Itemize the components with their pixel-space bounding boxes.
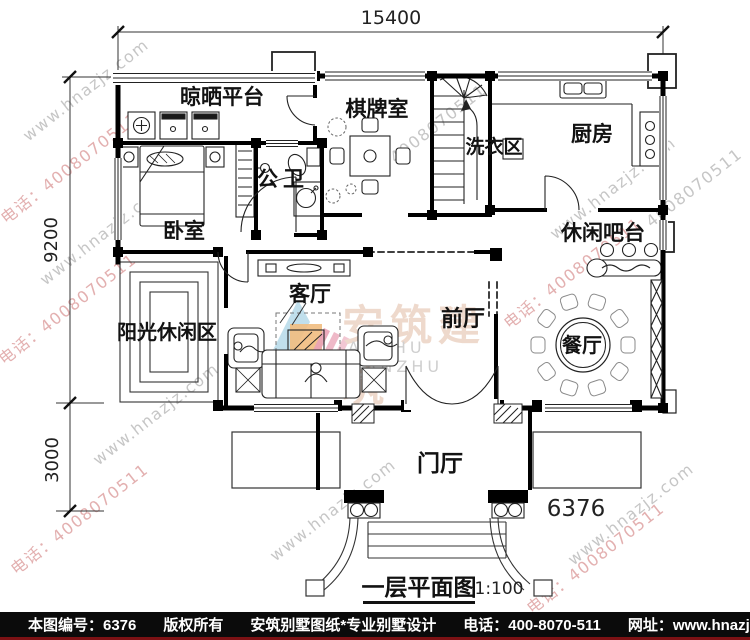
- tv-console: [258, 260, 350, 276]
- entry-width-number: 6376: [547, 496, 606, 522]
- bar-counter: [587, 244, 661, 278]
- footer-bar: 本图编号：6376 版权所有 安筑别墅图纸*专业别墅设计 电话：400-8070…: [0, 612, 750, 640]
- dim-left-lower: 3000: [42, 437, 63, 483]
- floor-plan-drawing: 15400 9200 3000: [0, 0, 750, 612]
- room-label-entry-hall: 门厅: [417, 450, 463, 476]
- room-label-bedroom: 卧室: [163, 219, 205, 243]
- room-label-kitchen: 厨房: [571, 122, 613, 146]
- footer-copyright: 版权所有: [163, 614, 223, 635]
- room-label-bar: 休闲吧台: [560, 221, 645, 245]
- footer-sheet-no: 本图编号：6376: [28, 614, 136, 635]
- room-label-living-room: 客厅: [289, 282, 331, 306]
- lattice-window: [651, 280, 662, 398]
- footer-phone: 电话：400-8070-511: [463, 614, 601, 635]
- room-label-front-hall: 前厅: [441, 306, 485, 331]
- room-label-drying-platform: 晾晒平台: [180, 85, 264, 109]
- plan-title-underline: [363, 601, 475, 604]
- footer-brand-line: 安筑别墅图纸*专业别墅设计: [250, 614, 436, 635]
- room-label-chess-room: 棋牌室: [346, 97, 409, 121]
- room-label-laundry: 洗衣区: [465, 135, 522, 158]
- drawing-sheet: 安筑建筑 ANZHU JIANZHU www.hnazjz.com电话：4008…: [0, 0, 750, 640]
- footer-site: 网址：www.hnazjz.com: [628, 614, 750, 635]
- living-label-leader: [280, 303, 306, 325]
- plan-scale: 1:100: [475, 579, 524, 599]
- room-label-sun-lounge: 阳光休闲区: [117, 320, 217, 344]
- washing-machines: [128, 112, 219, 139]
- sofa-set: [228, 326, 398, 398]
- bed: [120, 146, 224, 226]
- wardrobe: [236, 143, 254, 217]
- room-label-bathroom: 公卫: [257, 168, 309, 191]
- mahjong-table: [330, 118, 410, 194]
- porch-columns: [344, 490, 528, 518]
- dim-left-upper: 9200: [41, 217, 62, 263]
- room-label-dining-room: 餐厅: [562, 333, 602, 357]
- dim-top: 15400: [361, 7, 421, 29]
- plan-title: 一层平面图: [362, 574, 477, 600]
